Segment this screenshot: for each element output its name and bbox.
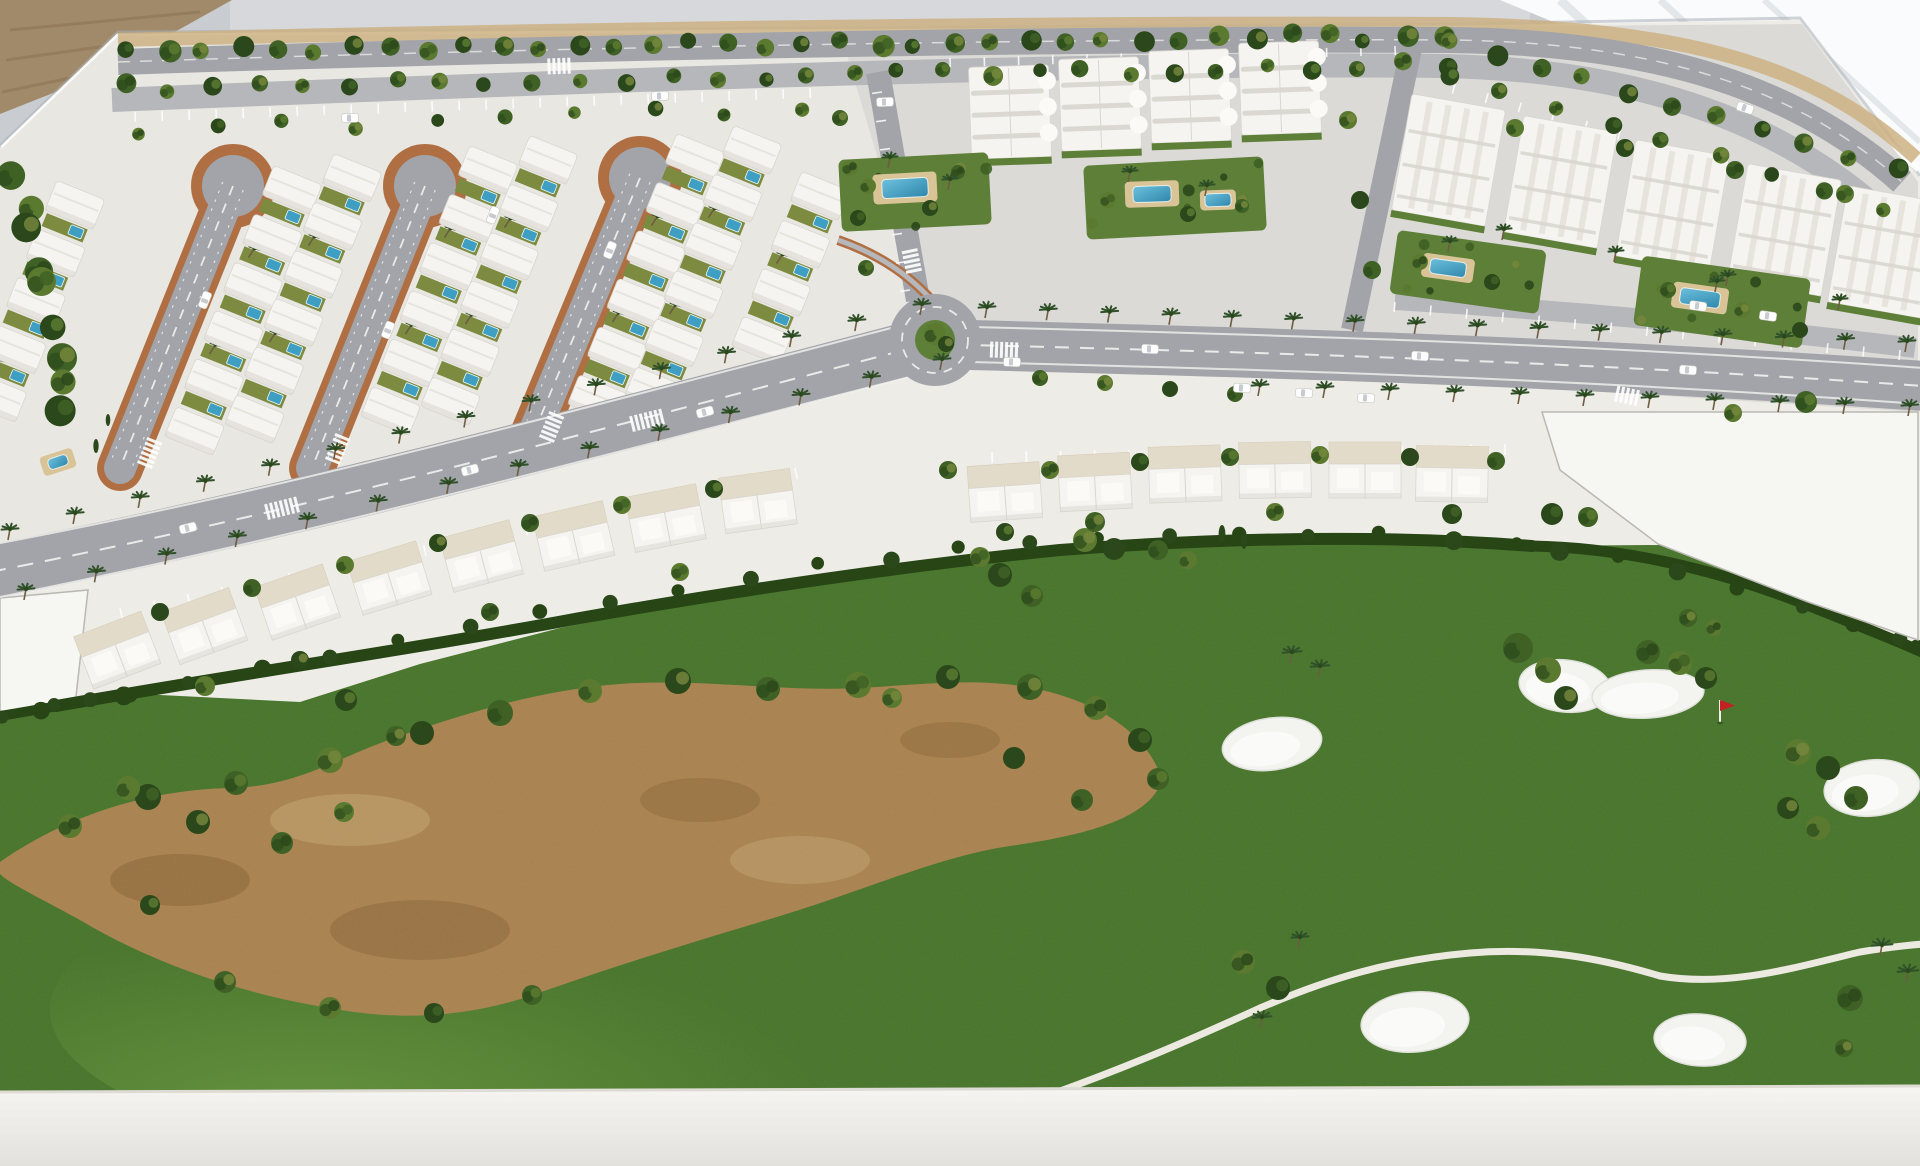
bush — [1017, 674, 1043, 700]
bush — [1180, 206, 1196, 222]
round-tree — [795, 103, 809, 117]
round-tree — [51, 370, 76, 395]
sand-dark-patch — [330, 900, 510, 960]
sand-dark-patch — [900, 722, 1000, 758]
round-tree — [1394, 52, 1412, 70]
townhouse-unit — [1057, 452, 1132, 512]
bush — [1412, 254, 1428, 270]
round-tree — [832, 110, 848, 126]
round-tree — [1033, 64, 1046, 77]
round-tree — [1283, 23, 1302, 42]
round-tree — [1663, 98, 1681, 116]
round-tree — [431, 73, 448, 90]
round-tree — [983, 66, 1003, 86]
round-tree — [613, 496, 631, 514]
round-tree — [1021, 30, 1041, 50]
bush — [1554, 686, 1578, 710]
round-tree — [1208, 64, 1224, 80]
round-tree — [159, 40, 181, 62]
townhouse-unit — [718, 468, 797, 533]
round-tree — [981, 33, 998, 50]
round-tree — [252, 75, 268, 91]
round-tree — [1209, 26, 1229, 46]
round-tree — [705, 480, 723, 498]
round-tree — [1321, 24, 1340, 43]
round-tree — [1764, 167, 1779, 182]
apartment-block — [1148, 48, 1238, 150]
bush — [936, 665, 960, 689]
round-tree — [336, 556, 354, 574]
bush — [1636, 640, 1660, 664]
round-tree — [1349, 61, 1365, 77]
round-tree — [305, 44, 321, 60]
bush — [1668, 651, 1692, 675]
model-car — [1411, 351, 1428, 361]
bush — [1503, 633, 1533, 663]
bush — [1844, 786, 1868, 810]
bush — [1785, 739, 1811, 765]
round-tree — [1679, 609, 1697, 627]
round-tree — [1311, 446, 1329, 464]
round-tree — [1231, 950, 1255, 974]
bush — [1734, 302, 1750, 318]
model-car — [1141, 344, 1158, 354]
bush — [1816, 756, 1840, 780]
round-tree — [233, 36, 254, 57]
round-tree — [1541, 503, 1563, 525]
bush — [665, 668, 691, 694]
bush — [1806, 816, 1830, 840]
round-tree — [481, 603, 499, 621]
cypress-tree — [1241, 533, 1247, 549]
round-tree — [1836, 185, 1854, 203]
model-car — [1759, 310, 1777, 321]
bush — [845, 672, 871, 698]
round-tree — [1032, 370, 1048, 386]
bush — [271, 832, 293, 854]
townhouse-unit — [1238, 441, 1311, 498]
architectural-model-photo — [0, 0, 1920, 1166]
round-tree — [842, 160, 858, 176]
bush — [58, 814, 82, 838]
model-car — [341, 113, 358, 123]
model-car — [1679, 365, 1697, 375]
round-tree — [117, 41, 134, 58]
round-tree — [858, 260, 874, 276]
bush — [578, 679, 602, 703]
round-tree — [1726, 161, 1744, 179]
round-tree — [1491, 83, 1507, 99]
round-tree — [570, 36, 590, 56]
round-tree — [269, 40, 287, 58]
round-tree — [1441, 32, 1457, 48]
round-tree — [568, 106, 581, 119]
round-tree — [1303, 61, 1321, 79]
round-tree — [1355, 34, 1370, 49]
bush — [1128, 728, 1152, 752]
bush — [1071, 789, 1093, 811]
townhouse-unit — [1148, 445, 1222, 503]
round-tree — [386, 726, 406, 746]
sand-dark-patch — [110, 854, 250, 906]
bush — [1792, 322, 1808, 338]
round-tree — [1442, 504, 1462, 524]
model-car — [876, 97, 893, 107]
round-tree — [1816, 182, 1833, 199]
round-tree — [27, 267, 56, 296]
round-tree — [151, 603, 169, 621]
townhouse-unit — [1416, 445, 1489, 502]
round-tree — [1401, 448, 1419, 466]
round-tree — [1397, 25, 1418, 46]
bush — [938, 336, 954, 352]
bush — [922, 200, 938, 216]
round-tree — [1134, 31, 1155, 52]
round-tree — [192, 43, 208, 59]
round-tree — [759, 73, 773, 87]
bush — [186, 810, 210, 834]
round-tree — [671, 563, 689, 581]
round-tree — [644, 36, 662, 54]
round-tree — [618, 74, 636, 92]
bush — [882, 688, 902, 708]
round-tree — [888, 63, 903, 78]
bush — [1695, 667, 1717, 689]
round-tree — [1166, 64, 1184, 82]
round-tree — [195, 676, 215, 696]
bush — [756, 677, 780, 701]
apartment-block — [968, 64, 1058, 166]
model-car — [1689, 300, 1707, 311]
round-tree — [160, 84, 175, 99]
round-tree — [850, 210, 866, 226]
round-tree — [1266, 503, 1284, 521]
round-tree — [1071, 60, 1088, 77]
round-tree — [1351, 191, 1369, 209]
model-base-front — [0, 1086, 1920, 1166]
bush — [1003, 747, 1025, 769]
round-tree — [45, 395, 76, 426]
cypress-tree — [1219, 525, 1226, 543]
round-tree — [431, 114, 444, 127]
round-tree — [1840, 150, 1856, 166]
bush — [1084, 696, 1108, 720]
bush — [1103, 538, 1125, 560]
round-tree — [1085, 512, 1105, 532]
bush — [1660, 282, 1676, 298]
townhouse-unit — [1329, 442, 1401, 498]
model-car — [651, 91, 668, 101]
bush — [1100, 192, 1116, 208]
bush — [522, 985, 542, 1005]
round-tree — [47, 343, 77, 373]
round-tree — [1619, 84, 1638, 103]
round-tree — [390, 71, 406, 87]
round-tree — [1097, 375, 1113, 391]
round-tree — [946, 33, 966, 53]
bush — [970, 547, 990, 567]
round-tree — [1261, 59, 1275, 73]
round-tree — [1573, 68, 1589, 84]
round-tree — [1441, 67, 1460, 86]
round-tree — [530, 41, 546, 57]
round-tree — [1339, 111, 1357, 129]
bush — [116, 776, 140, 800]
bush — [140, 895, 160, 915]
round-tree — [573, 74, 587, 88]
round-tree — [429, 534, 447, 552]
round-tree — [211, 118, 226, 133]
round-tree — [1652, 132, 1668, 148]
round-tree — [116, 73, 136, 93]
scale-model-scene — [0, 0, 1920, 1166]
round-tree — [1713, 147, 1730, 164]
bush — [214, 971, 236, 993]
round-tree — [1876, 203, 1890, 217]
round-tree — [1148, 540, 1168, 560]
round-tree — [132, 128, 145, 141]
round-tree — [905, 39, 920, 54]
bush — [1777, 797, 1799, 819]
round-tree — [1487, 45, 1508, 66]
round-tree — [793, 36, 809, 52]
bush — [487, 700, 513, 726]
round-tree — [1506, 119, 1524, 137]
bush — [424, 1003, 444, 1023]
round-tree — [11, 213, 41, 243]
round-tree — [996, 523, 1014, 541]
round-tree — [1487, 452, 1505, 470]
bush — [224, 771, 248, 795]
bush — [1147, 768, 1169, 790]
round-tree — [1124, 67, 1139, 82]
round-tree — [274, 114, 288, 128]
round-tree — [495, 37, 514, 56]
bush — [1535, 657, 1561, 683]
round-tree — [476, 77, 491, 92]
cypress-tree — [93, 439, 98, 453]
round-tree — [1754, 121, 1770, 137]
round-tree — [1707, 106, 1726, 125]
round-tree — [935, 62, 950, 77]
round-tree — [1724, 404, 1742, 422]
round-tree — [1266, 976, 1290, 1000]
bush — [1795, 391, 1817, 413]
bush — [410, 721, 434, 745]
pool — [1125, 180, 1180, 208]
round-tree — [1247, 28, 1268, 49]
model-car — [1295, 388, 1312, 398]
round-tree — [798, 67, 814, 83]
round-tree — [831, 32, 848, 49]
round-tree — [348, 121, 362, 135]
round-tree — [710, 72, 726, 88]
round-tree — [291, 651, 309, 669]
model-car — [1233, 383, 1250, 393]
apartment-block — [1238, 40, 1328, 142]
round-tree — [341, 78, 358, 95]
cypress-tree — [106, 414, 111, 426]
round-tree — [680, 33, 696, 49]
round-tree — [1578, 507, 1598, 527]
round-tree — [1179, 551, 1197, 569]
round-tree — [605, 39, 622, 56]
round-tree — [1131, 453, 1149, 471]
round-tree — [939, 461, 957, 479]
round-tree — [1794, 133, 1813, 152]
bush — [1235, 199, 1249, 213]
sand-dark-patch — [640, 778, 760, 822]
round-tree — [648, 101, 663, 116]
bush — [1021, 585, 1043, 607]
round-tree — [718, 108, 731, 121]
round-tree — [756, 39, 774, 57]
bush — [317, 747, 343, 773]
round-tree — [344, 36, 363, 55]
townhouse-unit — [967, 462, 1043, 523]
model-car — [1357, 393, 1374, 403]
round-tree — [1170, 32, 1188, 50]
round-tree — [719, 34, 737, 52]
round-tree — [455, 37, 471, 53]
bush — [860, 178, 876, 194]
round-tree — [40, 315, 66, 341]
round-tree — [1616, 139, 1634, 157]
round-tree — [1706, 620, 1722, 636]
round-tree — [295, 79, 309, 93]
bush — [1835, 1039, 1853, 1057]
round-tree — [666, 68, 681, 83]
round-tree — [1221, 448, 1239, 466]
bush — [1484, 274, 1500, 290]
round-tree — [1837, 985, 1863, 1011]
round-tree — [847, 65, 863, 81]
round-tree — [335, 689, 357, 711]
round-tree — [1363, 261, 1381, 279]
round-tree — [419, 42, 438, 61]
pool — [872, 171, 937, 204]
round-tree — [1093, 32, 1108, 47]
bush — [319, 997, 341, 1019]
round-tree — [1041, 461, 1059, 479]
round-tree — [243, 579, 261, 597]
round-tree — [523, 74, 540, 91]
bush — [334, 802, 354, 822]
round-tree — [381, 37, 399, 55]
round-tree — [1162, 381, 1178, 397]
model-car — [1003, 357, 1020, 367]
round-tree — [1057, 33, 1074, 50]
round-tree — [203, 77, 222, 96]
sand-light-patch — [730, 836, 870, 884]
bush — [988, 563, 1012, 587]
round-tree — [498, 109, 513, 124]
round-tree — [872, 35, 894, 57]
round-tree — [1605, 117, 1622, 134]
round-tree — [521, 514, 539, 532]
round-tree — [1889, 158, 1909, 178]
round-tree — [1533, 59, 1551, 77]
round-tree — [1549, 101, 1563, 115]
